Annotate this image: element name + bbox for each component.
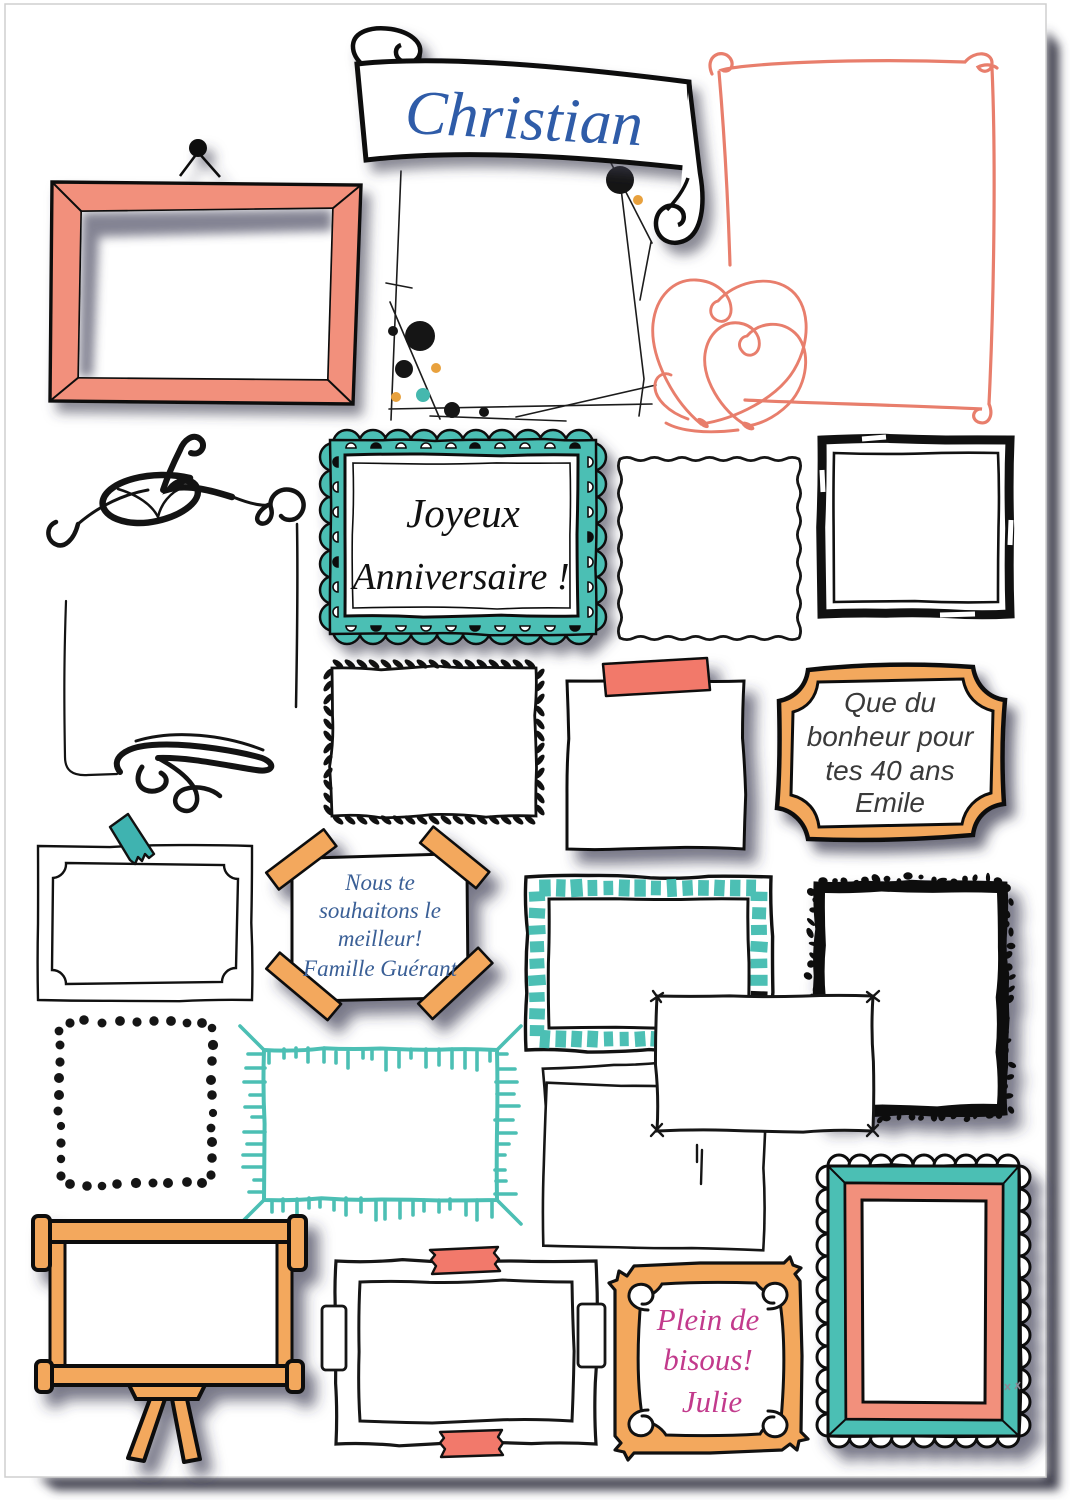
svg-text:Nous te: Nous te bbox=[344, 870, 415, 895]
svg-text:souhaitons le: souhaitons le bbox=[319, 898, 441, 923]
svg-text:Plein de: Plein de bbox=[656, 1302, 760, 1337]
svg-text:Joyeux: Joyeux bbox=[406, 490, 520, 536]
svg-text:tes 40 ans: tes 40 ans bbox=[825, 755, 954, 786]
svg-text:Christian: Christian bbox=[403, 77, 644, 159]
svg-text:Que du: Que du bbox=[844, 687, 936, 718]
svg-text:bisous!: bisous! bbox=[663, 1342, 753, 1377]
svg-text:meilleur!: meilleur! bbox=[338, 926, 422, 951]
svg-text:Julie: Julie bbox=[682, 1384, 742, 1419]
svg-text:bonheur pour: bonheur pour bbox=[807, 721, 975, 752]
svg-text:Emile: Emile bbox=[855, 787, 925, 818]
svg-text:Famille Guérant: Famille Guérant bbox=[302, 956, 458, 981]
svg-text:Anniversaire !: Anniversaire ! bbox=[349, 556, 569, 598]
